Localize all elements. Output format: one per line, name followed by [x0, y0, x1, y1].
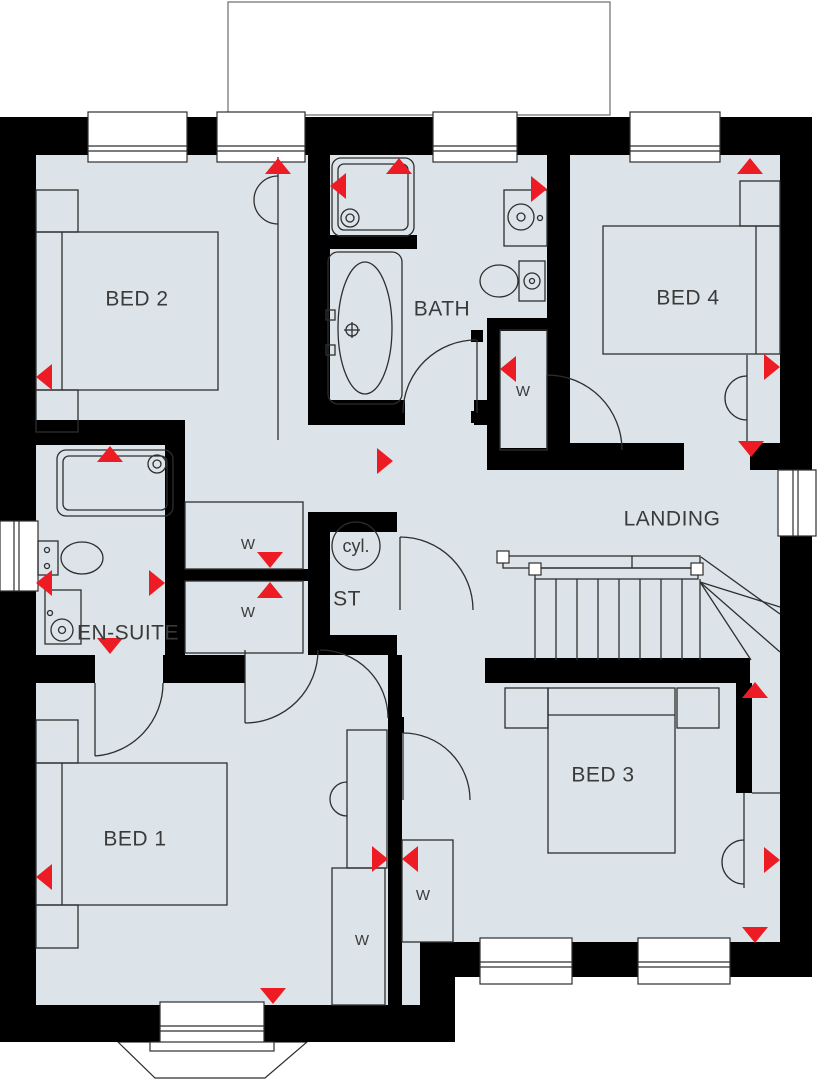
room-label-store: ST [333, 588, 361, 611]
floor-area [36, 155, 780, 1005]
newel-post [497, 551, 509, 563]
window-bed2-left [88, 112, 187, 162]
room-label-bed2: BED 2 [105, 288, 168, 311]
room-label-landing: LANDING [624, 508, 721, 531]
room-label-bed4: BED 4 [656, 287, 719, 310]
window-bed1 [150, 1002, 274, 1051]
window-bath [433, 112, 517, 162]
wardrobe-label-upper: W [241, 536, 256, 553]
window-bed2-right [217, 112, 305, 162]
window-bed3-left [480, 938, 572, 984]
wardrobe-label-bed4: W [516, 383, 531, 400]
floor-plan-drawing: BED 2 BATH BED 4 EN-SUITE ST LANDING BED… [0, 0, 819, 1080]
newel-post-2 [529, 563, 541, 575]
room-label-bath: BATH [414, 298, 470, 321]
wardrobe-label-lower: W [241, 604, 256, 621]
window-ensuite [0, 521, 38, 591]
wardrobe-label-bed3: W [416, 887, 431, 904]
window-bed3-right [638, 938, 730, 984]
room-label-ensuite: EN-SUITE [77, 622, 179, 645]
room-label-bed1: BED 1 [103, 828, 166, 851]
wardrobe-label-bed1: W [355, 932, 370, 949]
roof-outline [228, 2, 610, 115]
cylinder-label: cyl. [343, 536, 370, 556]
window-bed4 [630, 112, 720, 162]
window-landing [778, 470, 816, 536]
room-label-bed3: BED 3 [571, 764, 634, 787]
newel-post-3 [691, 563, 703, 575]
floor-plan-page: BED 2 BATH BED 4 EN-SUITE ST LANDING BED… [0, 0, 819, 1080]
